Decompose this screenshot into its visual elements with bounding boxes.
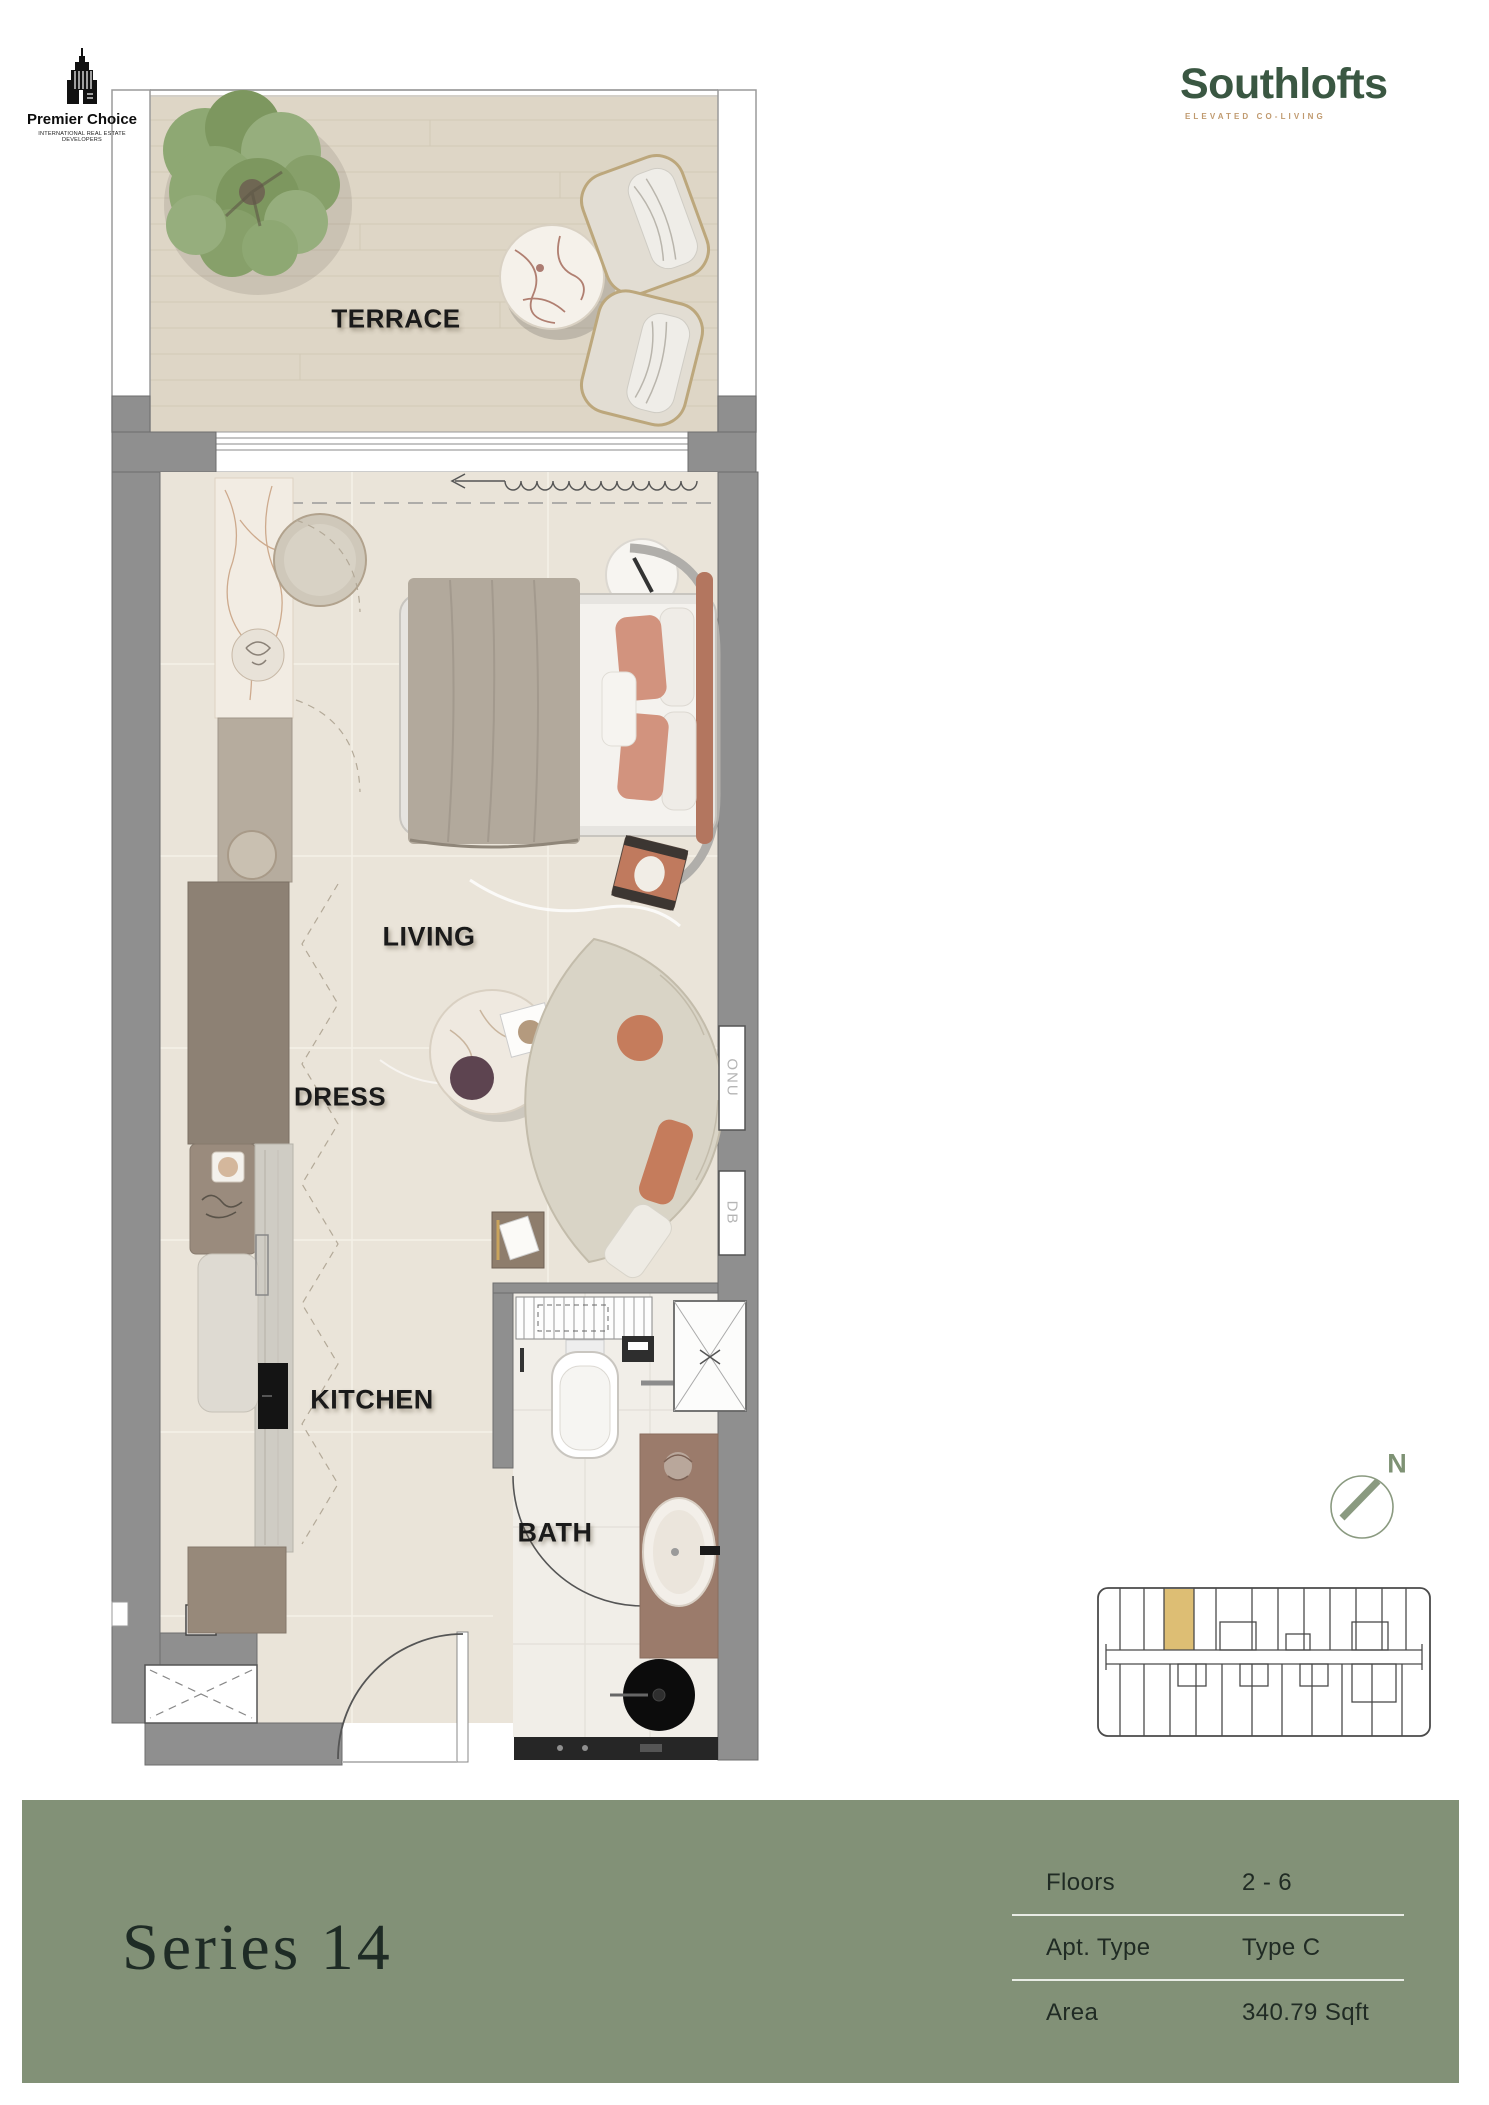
southlofts-wordmark: Southlofts	[1180, 60, 1440, 109]
toilet-paper-holder	[622, 1336, 654, 1362]
detail-label: Area	[1046, 1999, 1242, 2027]
detail-label: Floors	[1046, 1869, 1242, 1897]
db-label: DB	[724, 1201, 741, 1226]
bath-counter-strip	[514, 1737, 718, 1760]
details-table: Floors 2 - 6 Apt. Type Type C Area 340.7…	[1012, 1851, 1404, 2044]
southlofts-tagline: ELEVATED CO-LIVING	[1180, 112, 1440, 121]
detail-label: Apt. Type	[1046, 1934, 1242, 1962]
headboard	[696, 572, 713, 844]
sofa-pillow-round	[617, 1015, 663, 1061]
dressing-table	[190, 1144, 256, 1254]
terrace-label: TERRACE	[331, 304, 460, 335]
detail-row-apt-type: Apt. Type Type C	[1012, 1916, 1404, 1981]
terrace-right-wall	[718, 90, 756, 432]
detail-row-area: Area 340.79 Sqft	[1012, 1981, 1404, 2044]
living-label: LIVING	[382, 922, 475, 953]
kitchen-lower-block	[188, 1547, 286, 1633]
duct-shaft	[145, 1665, 257, 1723]
highlighted-unit	[1164, 1589, 1194, 1650]
detail-value: Type C	[1242, 1934, 1404, 1962]
detail-row-floors: Floors 2 - 6	[1012, 1851, 1404, 1916]
wardrobe	[188, 882, 289, 1144]
floor-plan-drawing	[0, 0, 1489, 2105]
premier-choice-tagline: INTERNATIONAL REAL ESTATE DEVELOPERS	[18, 131, 146, 143]
detail-value: 340.79 Sqft	[1242, 1999, 1404, 2027]
side-table	[492, 1212, 544, 1268]
shower-shaft	[674, 1301, 746, 1411]
compass-icon	[1331, 1476, 1393, 1538]
bath-vanity	[640, 1434, 720, 1658]
premier-choice-name: Premier Choice	[18, 111, 146, 128]
premier-choice-logo: Premier Choice INTERNATIONAL REAL ESTATE…	[18, 46, 146, 143]
footer-bar: Series 14 Floors 2 - 6 Apt. Type Type C …	[22, 1800, 1459, 2083]
floorplan-sheet: Premier Choice INTERNATIONAL REAL ESTATE…	[0, 0, 1489, 2105]
bath-label: BATH	[518, 1518, 593, 1549]
southlofts-logo: Southlofts ELEVATED CO-LIVING	[1180, 60, 1440, 121]
console-counter	[218, 718, 292, 882]
toilet	[552, 1340, 618, 1458]
north-label: N	[1387, 1449, 1407, 1480]
onu-label: ONU	[724, 1058, 741, 1097]
premier-choice-tower-icon	[22, 46, 142, 104]
duvet	[408, 578, 580, 847]
key-plan	[1098, 1588, 1430, 1736]
window-band	[112, 432, 756, 472]
series-title: Series 14	[122, 1910, 393, 1986]
dress-label: DRESS	[294, 1082, 386, 1113]
kitchen-label: KITCHEN	[310, 1385, 434, 1416]
detail-value: 2 - 6	[1242, 1869, 1404, 1897]
